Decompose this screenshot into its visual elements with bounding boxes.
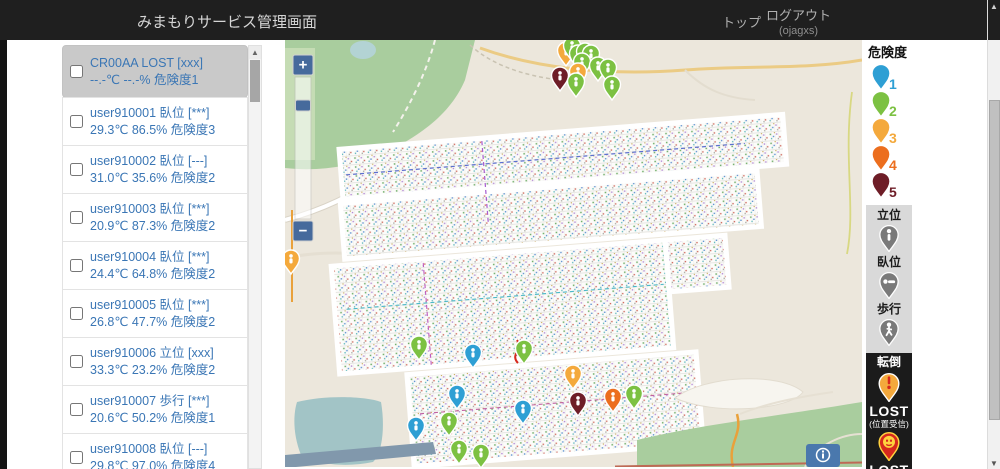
user-list-item[interactable]: user910006 立位 [xxx]33.3℃ 23.2% 危険度2 (62, 337, 248, 386)
scrollbar-up-icon[interactable]: ▲ (988, 0, 1000, 40)
logout-account: (ojagxs) (766, 25, 831, 37)
map-attribution-button[interactable] (806, 444, 840, 467)
page-title: みまもりサービス管理画面 (137, 11, 317, 32)
user-checkbox[interactable] (70, 307, 83, 320)
header-bar: みまもりサービス管理画面 トップ ログアウト(ojagxs) (0, 0, 1000, 40)
standing-pin-icon (878, 224, 900, 252)
zoom-slider-knob[interactable] (296, 100, 311, 111)
left-edge-strip (0, 40, 7, 469)
user-list-item[interactable]: user910005 臥位 [***]26.8℃ 47.7% 危険度2 (62, 289, 248, 338)
zoom-out-label: − (299, 223, 308, 240)
fall-pin-icon (877, 372, 901, 402)
user-list: CR00AA LOST [xxx]--.-℃ --.-% 危険度1user910… (62, 45, 248, 469)
danger-level-1: 1 (870, 63, 912, 90)
user-list-item[interactable]: user910004 臥位 [***]24.4℃ 64.8% 危険度2 (62, 241, 248, 290)
user-checkbox[interactable] (70, 259, 83, 272)
user-info: user910003 臥位 [***]20.9℃ 87.3% 危険度2 (90, 201, 215, 234)
danger-level-number: 2 (889, 105, 897, 117)
scrollbar-down-icon[interactable]: ▼ (988, 459, 1000, 468)
user-info: user910004 臥位 [***]24.4℃ 64.8% 危険度2 (90, 249, 215, 282)
danger-level-2: 2 (870, 90, 912, 117)
user-info: user910007 歩行 [***]20.6℃ 50.2% 危険度1 (90, 393, 215, 426)
lost-received-label: LOST (866, 404, 912, 419)
user-info: CR00AA LOST [xxx]--.-℃ --.-% 危険度1 (90, 55, 203, 88)
zoom-in-label: + (299, 57, 308, 74)
danger-level-number: 3 (889, 132, 897, 144)
danger-level-number: 5 (889, 186, 897, 198)
alert-legend: 転倒 LOST (位置受信) LOST (位置不明) (866, 353, 912, 469)
walking-pin-icon (878, 318, 900, 346)
posture-lying-label: 臥位 (866, 255, 912, 270)
lost-received-pin-icon (877, 431, 901, 461)
user-info: user910008 臥位 [---]29.8℃ 97.0% 危険度4 (90, 441, 215, 469)
page-scroll-thumb[interactable] (989, 100, 1000, 420)
user-list-item[interactable]: CR00AA LOST [xxx]--.-℃ --.-% 危険度1 (62, 45, 248, 98)
legend-panel: 危険度 12345 立位 臥位 歩行 転倒 (866, 42, 912, 469)
nav-logout-link[interactable]: ログアウト(ojagxs) (766, 5, 831, 37)
lost-received-sub: (位置受信) (866, 419, 912, 429)
scroll-up-icon[interactable]: ▲ (249, 46, 261, 59)
fall-label: 転倒 (866, 355, 912, 370)
pond (350, 41, 376, 59)
posture-walking-label: 歩行 (866, 302, 912, 317)
lying-pin-icon (878, 271, 900, 299)
danger-level-3: 3 (870, 117, 912, 144)
user-checkbox[interactable] (70, 65, 83, 78)
user-info: user910002 臥位 [---]31.0℃ 35.6% 危険度2 (90, 153, 215, 186)
user-list-item[interactable]: user910001 臥位 [***]29.3℃ 86.5% 危険度3 (62, 97, 248, 146)
danger-level-4: 4 (870, 144, 912, 171)
user-info: user910001 臥位 [***]29.3℃ 86.5% 危険度3 (90, 105, 215, 138)
zoom-slider-track[interactable] (295, 77, 311, 219)
user-checkbox[interactable] (70, 451, 83, 464)
page-scrollbar[interactable]: ▲ ▼ (987, 0, 1000, 469)
user-list-item[interactable]: user910003 臥位 [***]20.9℃ 87.3% 危険度2 (62, 193, 248, 242)
user-list-item[interactable]: user910002 臥位 [---]31.0℃ 35.6% 危険度2 (62, 145, 248, 194)
user-checkbox[interactable] (70, 115, 83, 128)
nav-top-link[interactable]: トップ (722, 12, 761, 31)
user-list-scroll-thumb[interactable] (250, 60, 260, 102)
user-checkbox[interactable] (70, 211, 83, 224)
danger-level-number: 4 (889, 159, 897, 171)
posture-legend: 立位 臥位 歩行 (866, 205, 912, 353)
logout-label[interactable]: ログアウト (766, 8, 831, 23)
map-canvas[interactable]: + − (285, 40, 862, 467)
user-info: user910005 臥位 [***]26.8℃ 47.7% 危険度2 (90, 297, 215, 330)
user-list-item[interactable]: user910007 歩行 [***]20.6℃ 50.2% 危険度1 (62, 385, 248, 434)
user-list-scrollbar[interactable]: ▲ (248, 45, 262, 469)
user-checkbox[interactable] (70, 163, 83, 176)
map-svg: + − (285, 40, 862, 467)
zoom-control: + − (293, 55, 313, 241)
danger-level-number: 1 (889, 78, 897, 90)
danger-level-5: 5 (870, 171, 912, 198)
user-info: user910006 立位 [xxx]33.3℃ 23.2% 危険度2 (90, 345, 215, 378)
lost-unknown-label: LOST (866, 463, 912, 469)
posture-standing-label: 立位 (866, 208, 912, 223)
user-list-item[interactable]: user910008 臥位 [---]29.8℃ 97.0% 危険度4 (62, 433, 248, 469)
legend-title: 危険度 (868, 42, 912, 61)
user-checkbox[interactable] (70, 355, 83, 368)
danger-levels: 12345 (866, 63, 912, 198)
monitoring-dashboard: みまもりサービス管理画面 トップ ログアウト(ojagxs) CR00AA LO… (0, 0, 1000, 469)
user-checkbox[interactable] (70, 403, 83, 416)
